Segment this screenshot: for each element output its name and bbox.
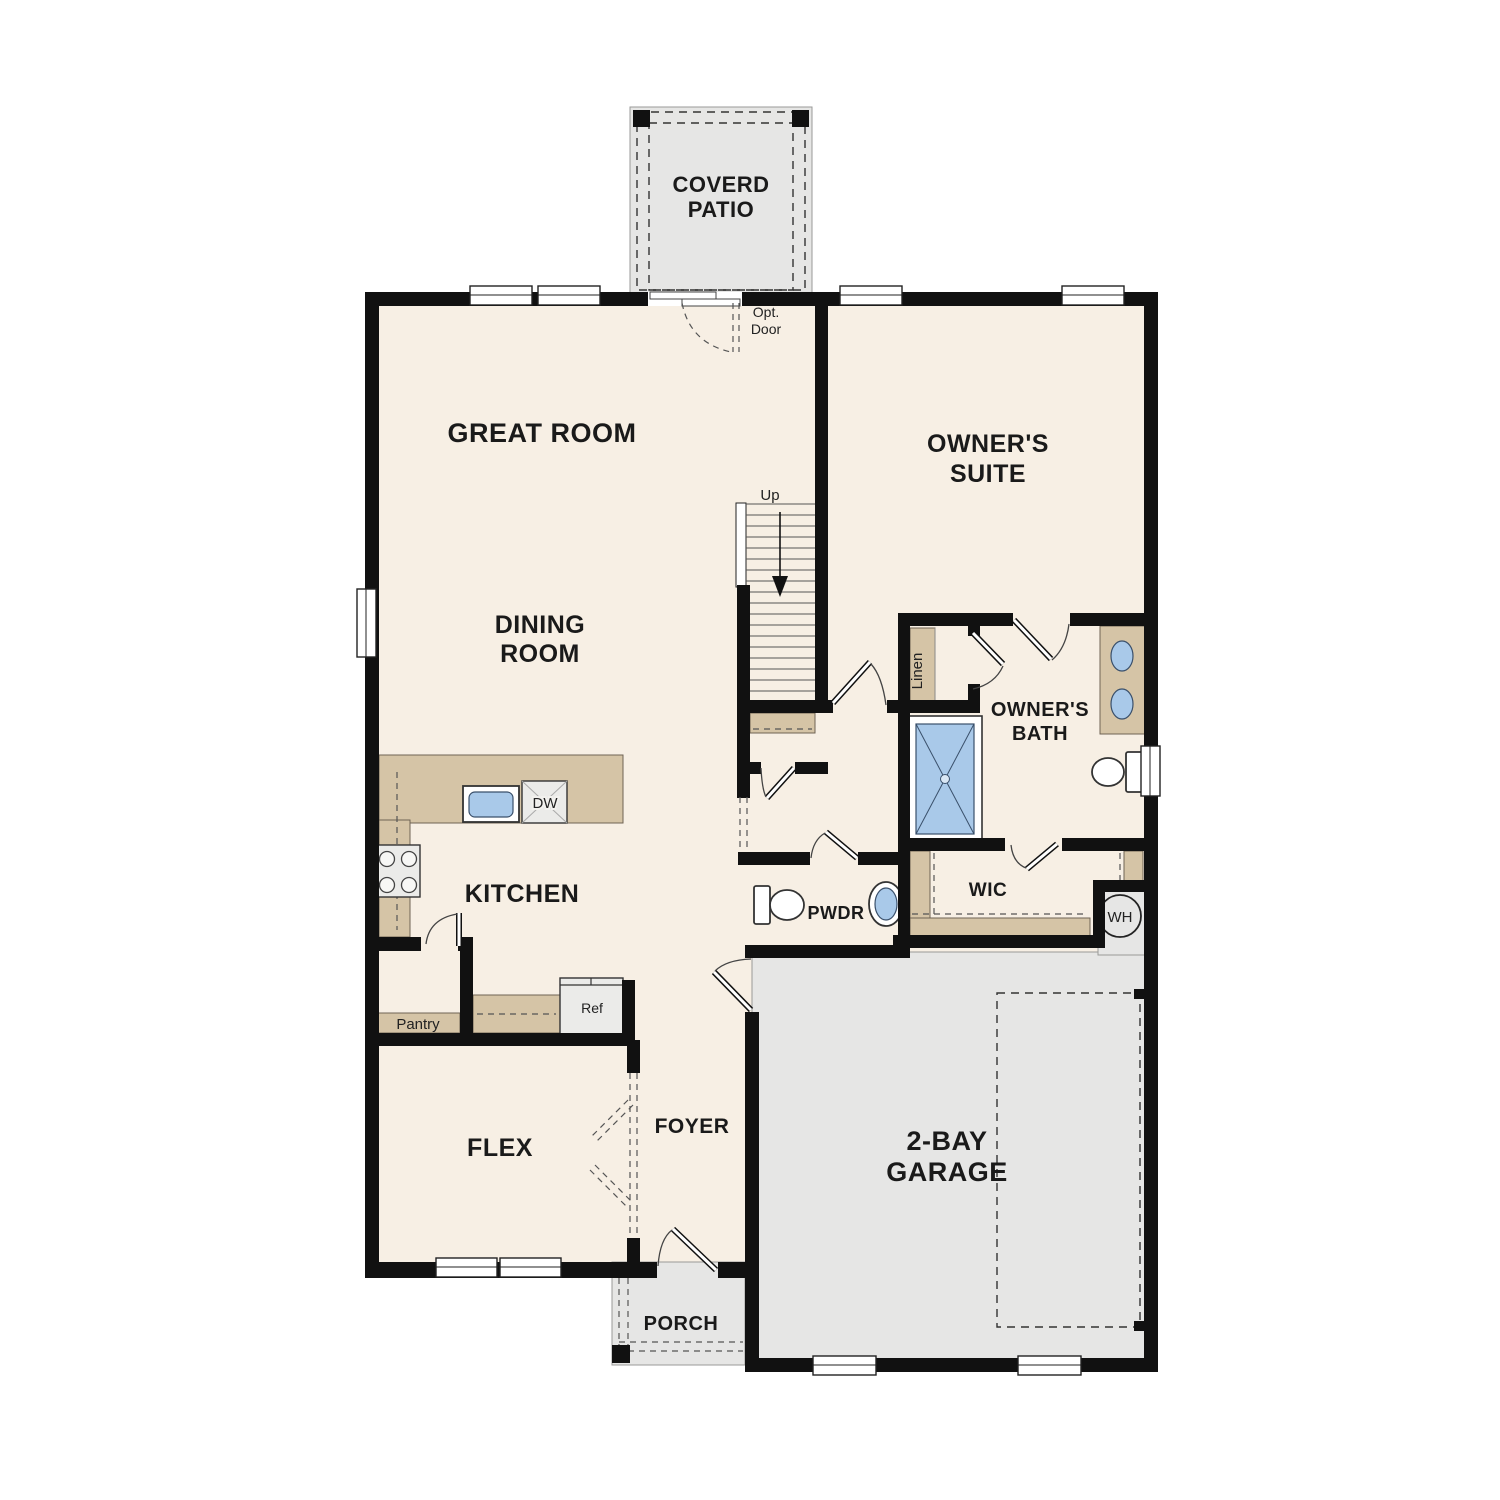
label-owners-suite-2: SUITE (950, 460, 1026, 488)
patio-post-right (792, 110, 809, 127)
wall-kitchen-flex (365, 1033, 635, 1046)
vanity-sink-1 (1111, 641, 1133, 671)
stair-newel-wall (736, 503, 746, 587)
window-owners-suite-1 (840, 286, 902, 305)
wall-garage-top (745, 945, 905, 958)
label-owners-suite-1: OWNER'S (927, 430, 1049, 458)
wic-shelf-bottom (910, 918, 1090, 937)
patio-door-panel-2 (682, 299, 740, 306)
wall-bath-top-left (898, 613, 1013, 626)
floor-plan-drawing: COVERD PATIO GREAT ROOM DINING ROOM OWNE… (0, 0, 1500, 1500)
label-kitchen: KITCHEN (465, 880, 580, 908)
label-wic: WIC (969, 880, 1007, 901)
label-dining-2: ROOM (500, 640, 580, 668)
range-burner-2 (402, 852, 417, 867)
wall-stair-right (815, 292, 828, 712)
wic-shelf-right (1124, 851, 1143, 882)
wall-powder-top-left (738, 852, 810, 865)
range-burner-1 (380, 852, 395, 867)
label-pantry: Pantry (396, 1016, 440, 1033)
label-garage-1: 2-BAY (906, 1126, 987, 1156)
window-owners-suite-2 (1062, 286, 1124, 305)
label-garage-2: GARAGE (886, 1157, 1008, 1187)
powder-toilet-bowl (770, 890, 804, 920)
label-linen: Linen (909, 653, 926, 690)
window-flex-1 (436, 1258, 497, 1277)
wall-closet-bottom-left (737, 762, 761, 774)
wall-linen-bottom (898, 700, 980, 713)
wall-stair-left (737, 585, 750, 774)
floor-plan-page: COVERD PATIO GREAT ROOM DINING ROOM OWNE… (0, 0, 1500, 1500)
kitchen-sink-basin (469, 792, 513, 817)
patio-door-panel-1 (650, 292, 716, 299)
label-owners-bath-2: BATH (1012, 723, 1068, 745)
label-foyer: FOYER (655, 1115, 730, 1138)
garage-bay-post-bottom (1134, 1321, 1144, 1331)
wall-flex-foyer-top-stub (627, 1040, 640, 1073)
garage-bay-post-top (1134, 989, 1144, 999)
floor-areas (372, 299, 1151, 1365)
wall-bath-top-right (1070, 613, 1158, 626)
label-owners-bath-1: OWNER'S (991, 699, 1089, 721)
label-porch: PORCH (644, 1313, 719, 1335)
label-stairs-up: Up (760, 487, 779, 504)
wall-bath-bottom-right (1062, 838, 1145, 851)
wall-left (365, 292, 379, 1278)
label-flex: FLEX (467, 1134, 533, 1162)
label-opt-door-1: Opt. (753, 304, 779, 320)
range-burner-3 (380, 878, 395, 893)
wall-pantry-top (365, 937, 421, 951)
window-garage-2 (1018, 1356, 1081, 1375)
wall-pantry-right (460, 947, 473, 1035)
shower-drain (941, 775, 950, 784)
porch-post (612, 1345, 630, 1363)
label-refrigerator: Ref (581, 1000, 603, 1016)
wall-garage-left (745, 1012, 759, 1372)
wall-hall-stub (737, 774, 750, 798)
powder-sink-basin (875, 888, 897, 920)
window-great-room-1 (470, 286, 532, 305)
bath-toilet-bowl (1092, 758, 1124, 786)
label-opt-door-2: Door (751, 321, 782, 337)
wall-nook-top (1093, 880, 1158, 892)
understair-shelf (750, 713, 815, 733)
label-dining-1: DINING (495, 611, 586, 639)
label-great-room: GREAT ROOM (448, 418, 637, 448)
powder-toilet-tank (754, 886, 770, 924)
window-flex-2 (500, 1258, 561, 1277)
wall-right (1144, 292, 1158, 1372)
wall-closet-top (737, 700, 828, 713)
patio-post-left (633, 110, 650, 127)
window-garage-1 (813, 1356, 876, 1375)
wall-garage-bottom (745, 1358, 1158, 1372)
wall-wic-bottom (893, 935, 1105, 948)
wall-closet-bottom-right (795, 762, 828, 774)
label-covered-patio-2: PATIO (688, 197, 754, 222)
label-water-heater: WH (1108, 909, 1133, 926)
vanity-sink-2 (1111, 689, 1133, 719)
window-dining-left (357, 589, 376, 657)
label-covered-patio-1: COVERD (672, 172, 769, 197)
label-dishwasher: DW (533, 795, 559, 812)
wall-ref-right (622, 980, 635, 1046)
window-great-room-2 (538, 286, 600, 305)
range-burner-4 (402, 878, 417, 893)
label-powder: PWDR (808, 903, 865, 923)
wall-powder-top-right (858, 852, 905, 865)
window-bath-right (1141, 746, 1160, 796)
wall-flex-foyer-bottom-stub (627, 1238, 640, 1264)
wall-bath-bottom-left (898, 838, 1005, 851)
